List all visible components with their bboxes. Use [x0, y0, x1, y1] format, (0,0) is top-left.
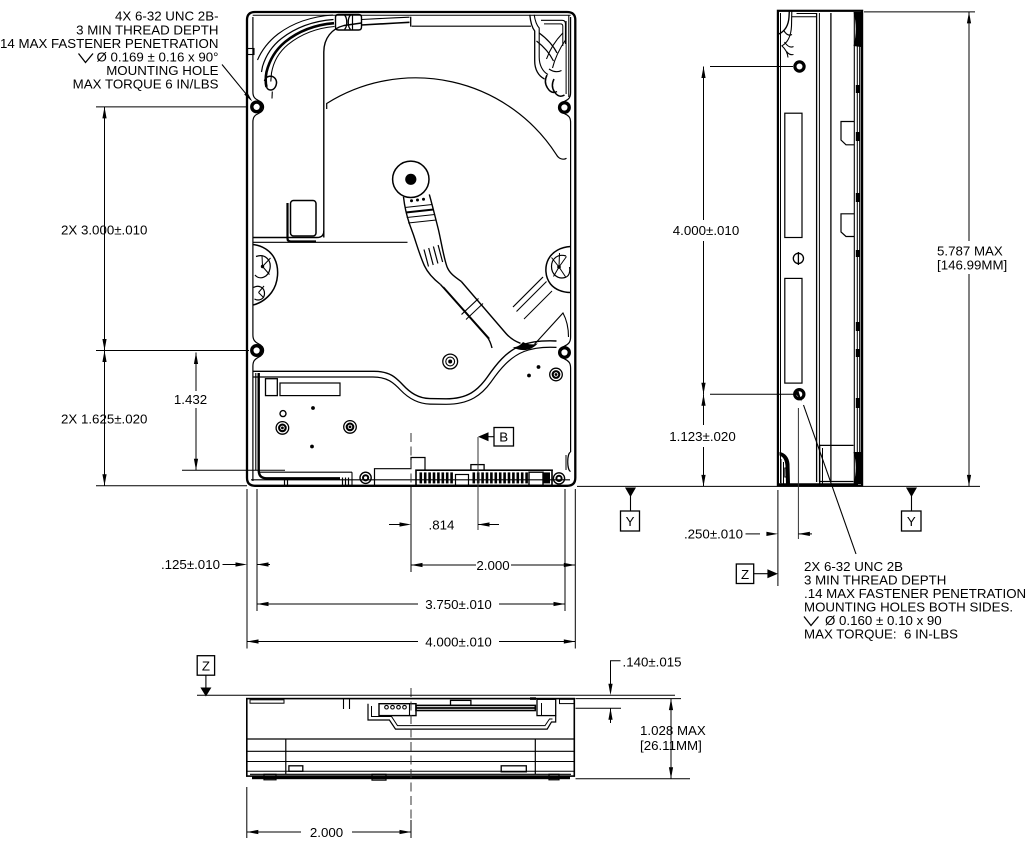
svg-text:2.000: 2.000 [476, 558, 509, 573]
svg-text:.125±.010: .125±.010 [161, 557, 220, 572]
svg-text:MAX TORQUE 6 IN/LBS: MAX TORQUE 6 IN/LBS [73, 77, 219, 92]
svg-text:4.000±.010: 4.000±.010 [673, 223, 739, 238]
svg-text:[26.11MM]: [26.11MM] [640, 738, 702, 753]
svg-text:1.432: 1.432 [174, 392, 207, 407]
svg-text:4.000±.010: 4.000±.010 [425, 634, 491, 649]
svg-text:1.028 MAX: 1.028 MAX [640, 723, 706, 738]
svg-text:1.123±.020: 1.123±.020 [669, 429, 735, 444]
svg-text:B: B [499, 430, 508, 445]
svg-text:MAX TORQUE: 6 IN-LBS: MAX TORQUE: 6 IN-LBS [804, 627, 958, 642]
svg-text:3.750±.010: 3.750±.010 [425, 597, 491, 612]
svg-text:Z: Z [741, 567, 749, 582]
svg-text:[146.99MM]: [146.99MM] [937, 257, 1007, 272]
svg-text:2X 1.625±.020: 2X 1.625±.020 [61, 412, 147, 427]
svg-text:Y: Y [907, 514, 916, 529]
svg-text:2X 3.000±.010: 2X 3.000±.010 [61, 223, 147, 238]
svg-text:Z: Z [202, 659, 210, 674]
svg-text:.250±.010: .250±.010 [684, 526, 743, 541]
svg-text:.814: .814 [429, 517, 455, 532]
svg-text:Y: Y [626, 514, 635, 529]
svg-text:5.787 MAX: 5.787 MAX [937, 244, 1003, 259]
svg-text:2.000: 2.000 [310, 825, 343, 840]
svg-text:.140±.015: .140±.015 [623, 655, 682, 670]
